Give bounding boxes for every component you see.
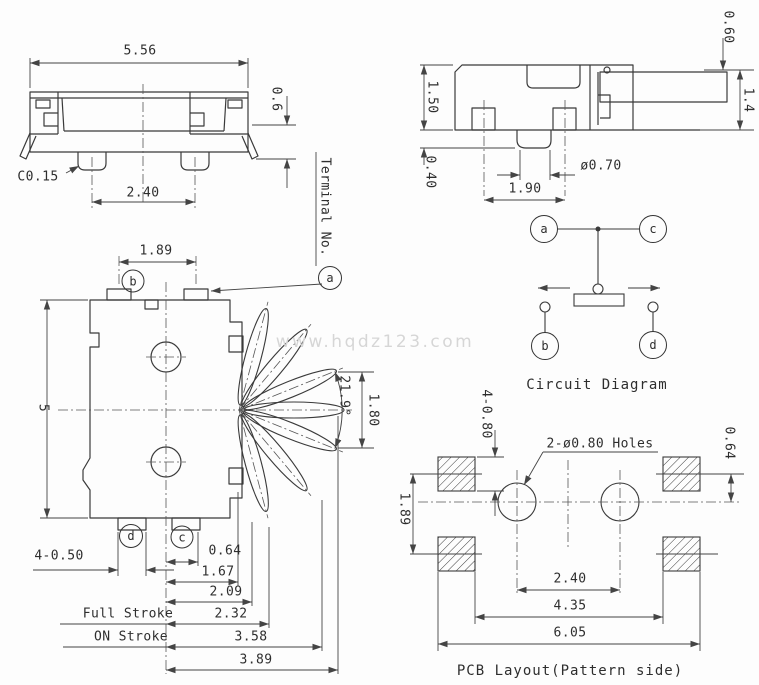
terminal-c-label: c — [171, 526, 194, 549]
circuit-terminal-a: a — [530, 215, 558, 243]
terminal-a-label: a — [318, 266, 342, 290]
dim-top-body-length: 5 — [37, 404, 50, 412]
dim-stack-3: 2.32 — [215, 608, 248, 621]
side-view-outline — [455, 65, 727, 148]
datasheet-drawing: www.hqdz123.com 5.56 0.6 C0.15 2.40 1.50… — [0, 0, 759, 685]
side-view-dimensions — [420, 38, 754, 200]
on-stroke-label: ON Stroke — [94, 631, 168, 644]
full-stroke-label: Full Stroke — [83, 608, 174, 621]
dim-pcb-offset: 0.64 — [723, 427, 736, 460]
pcb-holes-label: 2-ø0.80 Holes — [547, 438, 654, 451]
dim-front-width: 5.56 — [124, 45, 157, 58]
circuit-diagram-drawing — [538, 227, 660, 334]
terminal-no-label: Terminal No. — [319, 158, 332, 257]
circuit-terminal-d: d — [639, 331, 667, 359]
dim-stack-5: 3.89 — [240, 654, 273, 667]
terminal-b-label: b — [122, 270, 145, 293]
dim-pcb-hole-pitch: 2.40 — [554, 573, 587, 586]
circuit-terminal-b: b — [531, 332, 559, 360]
dim-stack-4: 3.58 — [235, 631, 268, 644]
dim-terminal-width: 4-0.50 — [34, 550, 83, 563]
terminal-d-label: d — [119, 524, 143, 548]
dim-side-boss-dia: ø0.70 — [580, 160, 621, 173]
dim-side-leg-height: 0.40 — [424, 156, 437, 189]
dim-stack-0: 0.64 — [209, 545, 242, 558]
dim-side-lever-offset: 0.60 — [722, 11, 735, 44]
dim-pcb-pad-outer: 6.05 — [554, 627, 587, 640]
front-view-dimensions — [30, 58, 296, 202]
dim-pcb-pad-width: 4-0.80 — [480, 389, 493, 438]
pcb-layout-caption: PCB Layout(Pattern side) — [457, 664, 683, 678]
dim-front-leg-pitch: 2.40 — [127, 187, 160, 200]
dim-front-step-height: 0.6 — [270, 87, 283, 112]
front-view-outline — [20, 92, 258, 170]
top-view-outline — [83, 289, 243, 530]
dim-lever-travel: 1.80 — [367, 394, 380, 427]
circuit-diagram-caption: Circuit Diagram — [526, 378, 667, 392]
dim-pcb-pad-pitch: 1.89 — [398, 493, 411, 526]
dim-side-body-height: 1.50 — [426, 81, 439, 114]
dim-pcb-pad-inner: 4.35 — [554, 600, 587, 613]
dim-top-terminal-pitch: 1.89 — [140, 245, 173, 258]
watermark: www.hqdz123.com — [276, 332, 475, 352]
chamfer-note: C0.15 — [17, 171, 58, 184]
dim-side-lever-height: 1.4 — [742, 88, 755, 113]
dim-stack-1: 1.67 — [202, 566, 235, 579]
dim-lever-angle: 21.9° — [338, 375, 351, 416]
dim-stack-2: 2.09 — [210, 586, 243, 599]
dim-side-leg-pitch: 1.90 — [509, 183, 542, 196]
circuit-terminal-c: c — [639, 215, 667, 243]
